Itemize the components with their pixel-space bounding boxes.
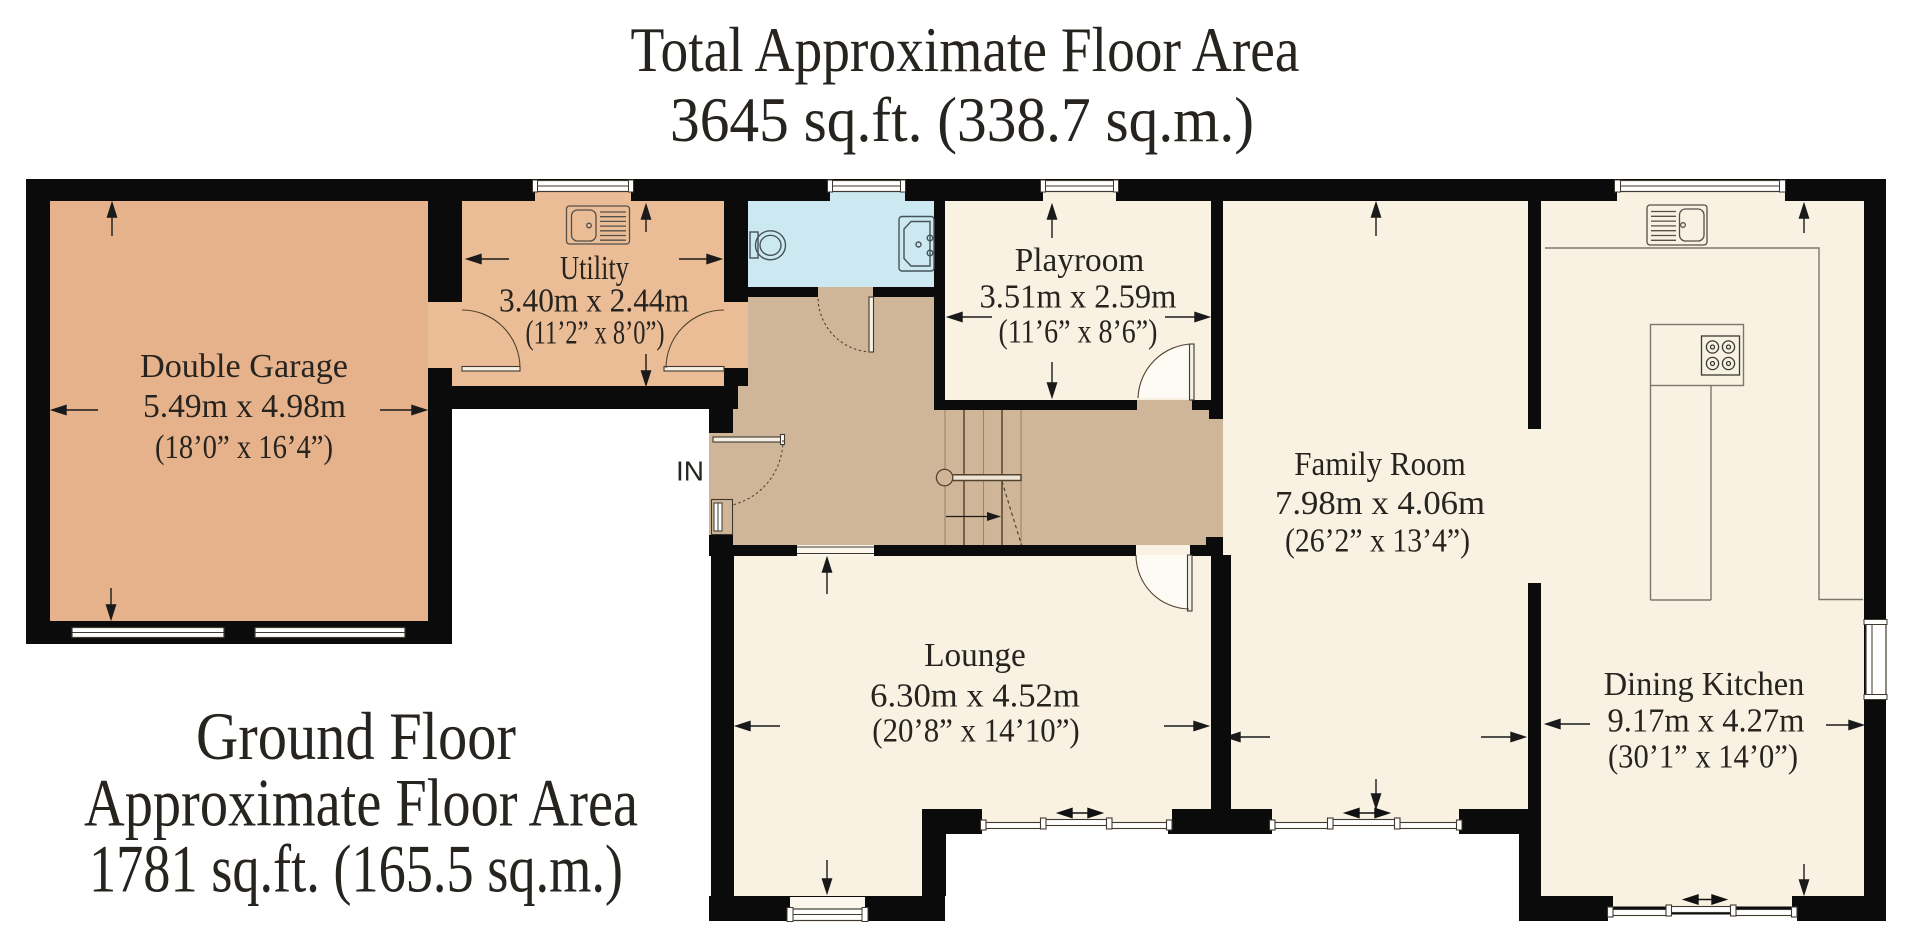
svg-text:(26’2” x 13’4”): (26’2” x 13’4”) (1285, 523, 1470, 560)
svg-text:Utility: Utility (560, 250, 629, 287)
svg-text:(20’8” x 14’10”): (20’8” x 14’10”) (872, 713, 1079, 750)
svg-text:(11’2” x 8’0”): (11’2” x 8’0”) (526, 315, 665, 352)
svg-text:(30’1” x 14’0”): (30’1” x 14’0”) (1608, 739, 1798, 776)
svg-text:Playroom: Playroom (1015, 242, 1145, 279)
svg-text:Lounge: Lounge (924, 637, 1026, 674)
svg-text:(11’6” x 8’6”): (11’6” x 8’6”) (999, 314, 1158, 351)
svg-text:3.51m x 2.59m: 3.51m x 2.59m (980, 279, 1177, 316)
svg-text:5.49m x 4.98m: 5.49m x 4.98m (143, 388, 346, 425)
svg-text:Approximate Floor Area: Approximate Floor Area (84, 765, 638, 841)
svg-text:(18’0” x 16’4”): (18’0” x 16’4”) (155, 429, 333, 466)
svg-text:9.17m x 4.27m: 9.17m x 4.27m (1608, 703, 1805, 740)
svg-text:Ground Floor: Ground Floor (196, 698, 516, 774)
svg-text:3645 sq.ft. (338.7 sq.m.): 3645 sq.ft. (338.7 sq.m.) (670, 85, 1254, 155)
svg-text:7.98m x 4.06m: 7.98m x 4.06m (1275, 485, 1485, 522)
svg-text:IN: IN (676, 456, 704, 487)
svg-text:Double Garage: Double Garage (140, 348, 348, 385)
svg-text:Family Room: Family Room (1294, 446, 1466, 483)
svg-text:Dining Kitchen: Dining Kitchen (1604, 666, 1805, 703)
svg-text:1781 sq.ft. (165.5 sq.m.): 1781 sq.ft. (165.5 sq.m.) (89, 831, 623, 907)
svg-text:Total Approximate Floor Area: Total Approximate Floor Area (631, 15, 1300, 85)
svg-text:6.30m x 4.52m: 6.30m x 4.52m (870, 678, 1080, 715)
